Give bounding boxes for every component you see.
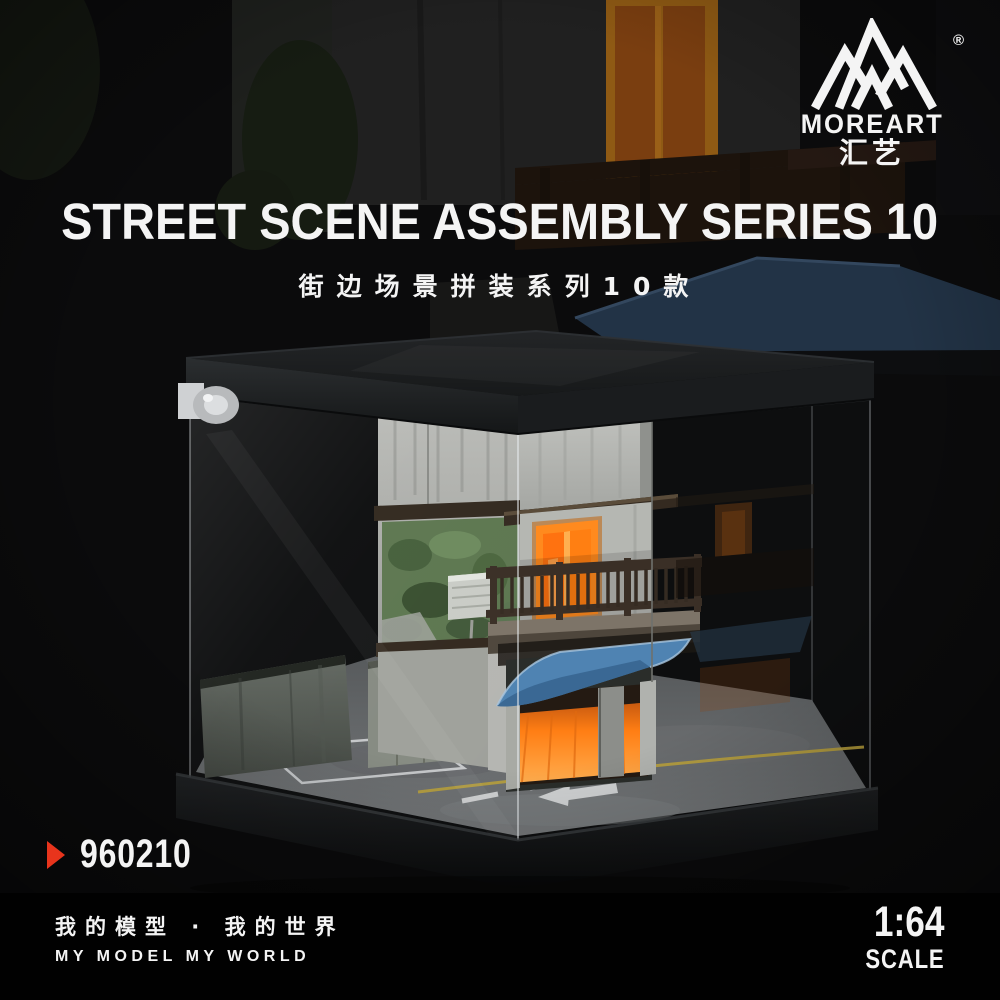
- scale-block: 1:64 SCALE: [848, 901, 945, 973]
- scale-ratio: 1:64: [866, 901, 945, 944]
- series-title: STREET SCENE ASSEMBLY SERIES 10: [62, 192, 939, 251]
- brand-name: MOREART: [801, 110, 944, 138]
- footer-slogans: 我的模型 · 我的世界 MY MODEL MY WORLD: [55, 911, 345, 966]
- red-arrow-icon: [46, 840, 66, 870]
- series-subtitle-cn: 街边场景拼装系列10款: [0, 267, 1000, 303]
- footer-bar: 我的模型 · 我的世界 MY MODEL MY WORLD 1:64 SCALE: [0, 893, 1000, 1000]
- brand-logo: ® MOREART 汇艺: [772, 18, 972, 170]
- product-poster: ® MOREART 汇艺 STREET SCENE ASSEMBLY SERIE…: [0, 0, 1000, 1000]
- scale-label: SCALE: [866, 946, 945, 973]
- headline-block: STREET SCENE ASSEMBLY SERIES 10 街边场景拼装系列…: [0, 192, 1000, 303]
- slogan-en: MY MODEL MY WORLD: [55, 948, 345, 966]
- brand-name-cn: 汇艺: [772, 138, 972, 170]
- moreart-mountain-logo: [787, 18, 957, 110]
- product-code: 960210: [80, 832, 192, 877]
- product-code-block: 960210: [46, 832, 219, 877]
- slogan-cn: 我的模型 · 我的世界: [55, 911, 345, 941]
- registered-mark: ®: [953, 32, 964, 49]
